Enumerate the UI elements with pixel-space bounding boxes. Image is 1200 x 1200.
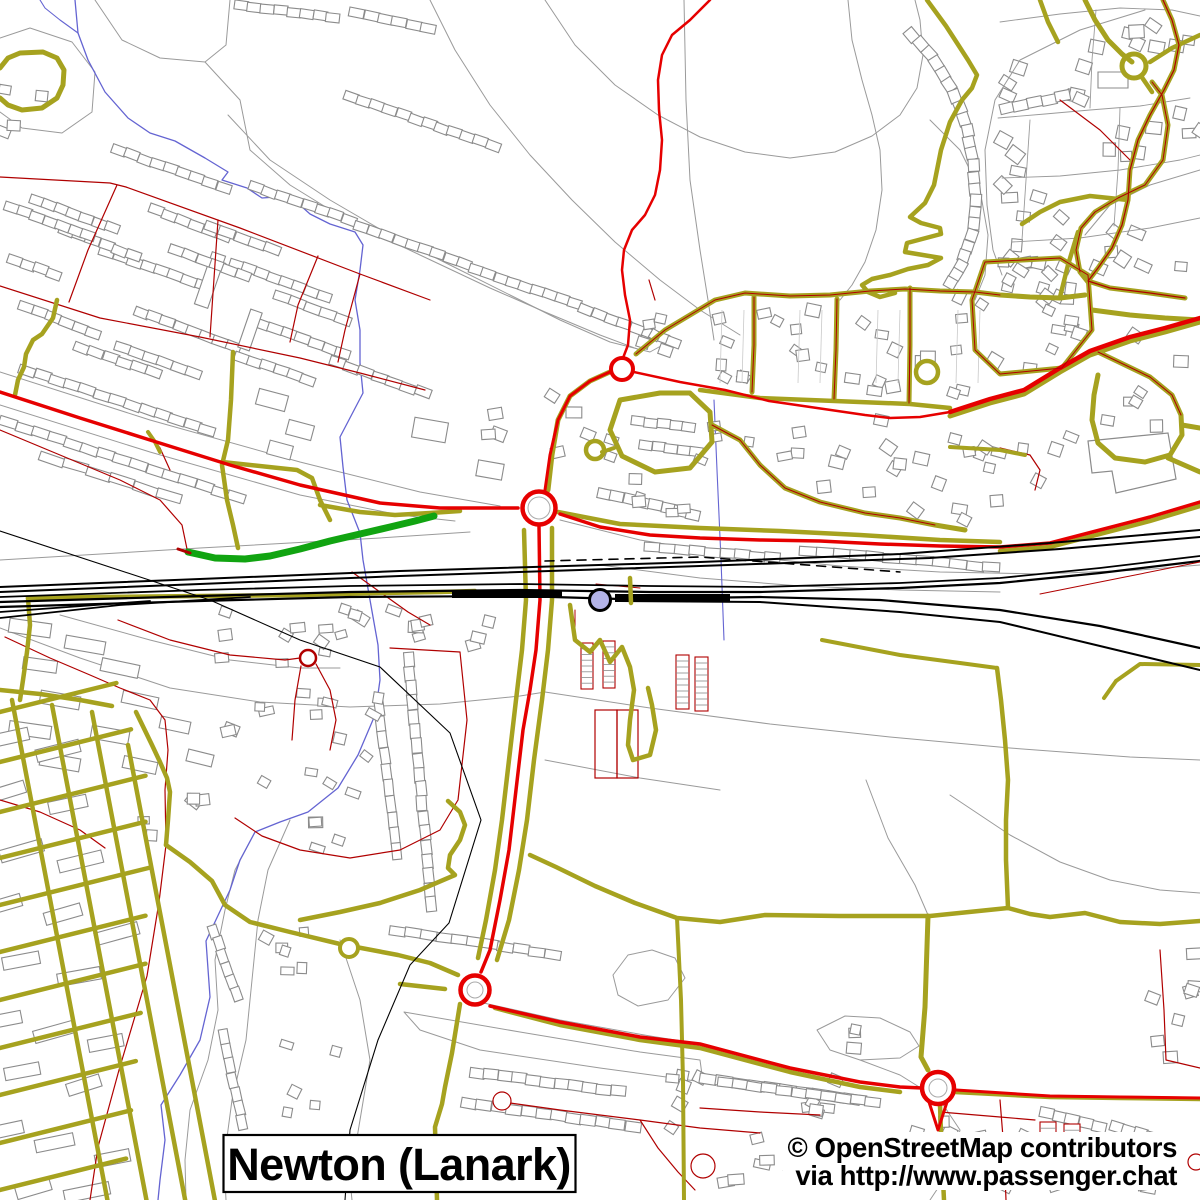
svg-text:via http://www.passenger.chat: via http://www.passenger.chat (795, 1160, 1177, 1191)
svg-text:Newton (Lanark): Newton (Lanark) (227, 1139, 571, 1190)
svg-text:© OpenStreetMap contributors: © OpenStreetMap contributors (787, 1132, 1177, 1163)
